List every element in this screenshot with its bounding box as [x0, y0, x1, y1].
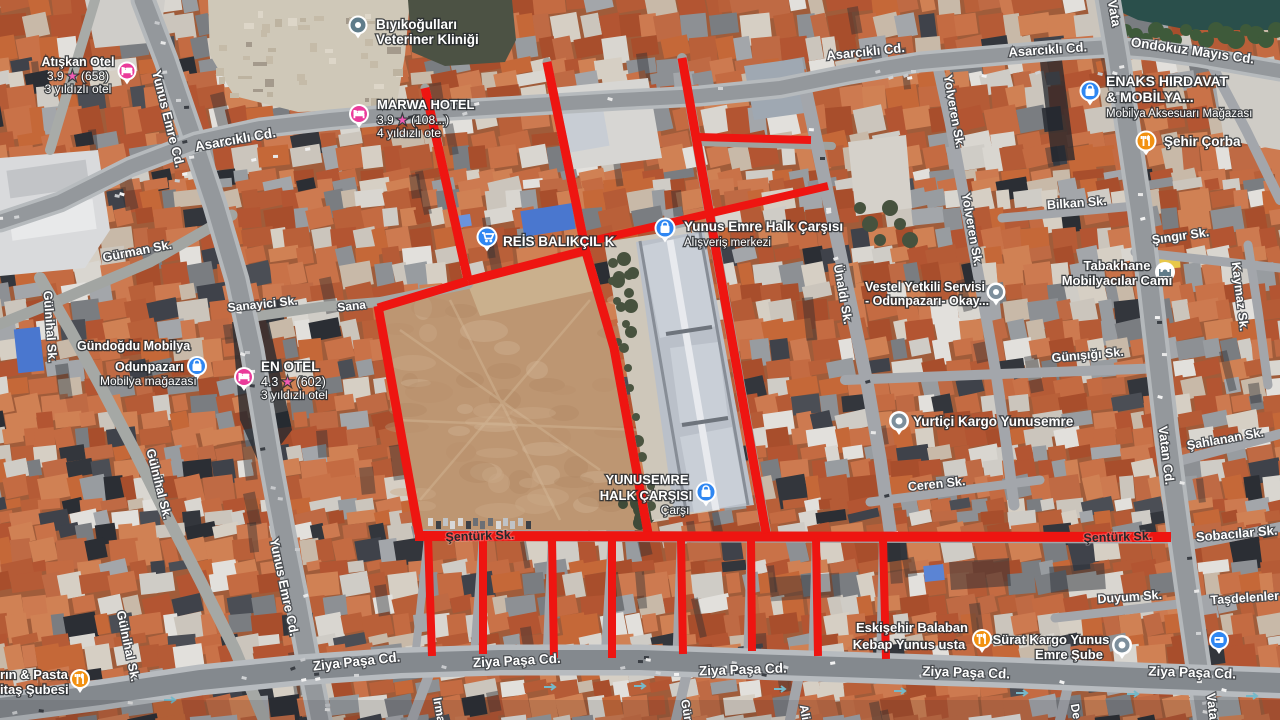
svg-text:4 yıldızlı ote: 4 yıldızlı ote: [377, 126, 441, 140]
svg-text:Ali: Ali: [797, 704, 813, 720]
svg-text:& MOBİLYA...: & MOBİLYA...: [1106, 89, 1194, 105]
svg-text:Ziya Paşa Cd.: Ziya Paşa Cd.: [1148, 663, 1236, 681]
svg-text:Tabakhane: Tabakhane: [1084, 258, 1151, 273]
svg-text:3 yıldızlı otel: 3 yıldızlı otel: [45, 82, 112, 96]
svg-text:Vestel Yetkili Servisi: Vestel Yetkili Servisi: [865, 280, 985, 294]
svg-text:- Odunpazarı- Okay...: - Odunpazarı- Okay...: [865, 294, 989, 308]
svg-text:Veteriner Kliniği: Veteriner Kliniği: [376, 32, 479, 47]
svg-text:Sürat Kargo Yunus: Sürat Kargo Yunus: [993, 632, 1110, 647]
svg-text:3.9 ★ (108...): 3.9 ★ (108...): [377, 113, 449, 127]
svg-text:Yunus Emre Halk Çarşısı: Yunus Emre Halk Çarşısı: [684, 219, 843, 234]
svg-text:Alışveriş merkezi: Alışveriş merkezi: [684, 237, 771, 249]
svg-text:4.3 ★ (602): 4.3 ★ (602): [261, 375, 326, 389]
svg-text:Bıyıkoğulları: Bıyıkoğulları: [376, 17, 457, 32]
svg-text:3 yıldızlı otel: 3 yıldızlı otel: [261, 388, 328, 402]
svg-text:Mobilya mağazası: Mobilya mağazası: [100, 374, 197, 388]
svg-text:Eskişehir Balaban: Eskişehir Balaban: [856, 620, 968, 635]
svg-text:De: De: [1068, 703, 1085, 720]
svg-text:Emre Şube: Emre Şube: [1035, 647, 1103, 662]
svg-text:HALK ÇARŞISI: HALK ÇARŞISI: [600, 488, 692, 503]
svg-text:Atışkan Otel: Atışkan Otel: [42, 55, 115, 69]
svg-text:Odunpazarı: Odunpazarı: [115, 360, 184, 374]
svg-text:Mobilya Aksesuarı Mağazası: Mobilya Aksesuarı Mağazası: [1106, 108, 1252, 120]
svg-text:Yurtiçi Kargo Yunusemre: Yurtiçi Kargo Yunusemre: [913, 414, 1074, 429]
svg-text:rın & Pasta: rın & Pasta: [0, 667, 69, 682]
svg-text:MARWA HOTEL: MARWA HOTEL: [377, 97, 475, 112]
svg-text:3.9 ★ (658): 3.9 ★ (658): [47, 69, 109, 83]
svg-text:Çarşı: Çarşı: [661, 503, 690, 517]
svg-text:ENAKS HIRDAVAT: ENAKS HIRDAVAT: [1106, 73, 1229, 89]
svg-text:Mobilyacılar Camı: Mobilyacılar Camı: [1062, 273, 1173, 288]
svg-text:Ziya Paşa Cd.: Ziya Paşa Cd.: [922, 663, 1010, 681]
svg-text:itaş Şubesi: itaş Şubesi: [0, 682, 69, 697]
svg-text:Gündoğdu Mobilya: Gündoğdu Mobilya: [77, 339, 191, 353]
svg-text:Kebap Yunus usta: Kebap Yunus usta: [853, 637, 966, 652]
svg-text:YUNUSEMRE: YUNUSEMRE: [605, 472, 688, 487]
svg-text:EN OTEL: EN OTEL: [261, 359, 320, 374]
svg-text:Ziya Paşa Cd.: Ziya Paşa Cd.: [699, 660, 787, 678]
svg-text:REİS BALIKÇIL K: REİS BALIKÇIL K: [503, 234, 615, 249]
svg-text:Şentürk Sk.: Şentürk Sk.: [445, 528, 514, 544]
svg-text:Şehir Çorba: Şehir Çorba: [1164, 134, 1241, 149]
svg-text:Şentürk Sk.: Şentürk Sk.: [1083, 529, 1152, 545]
